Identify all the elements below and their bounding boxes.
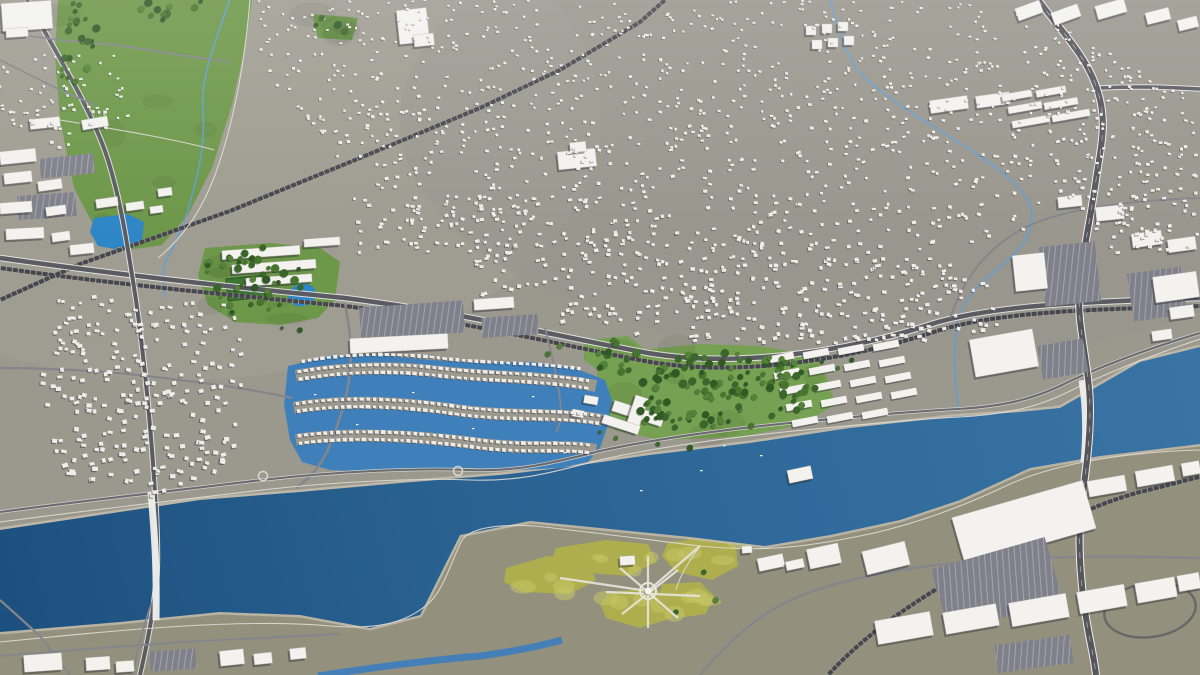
tree (744, 382, 748, 386)
house (610, 144, 613, 147)
building (742, 546, 752, 554)
house (853, 326, 857, 329)
house (151, 425, 157, 430)
house (1183, 209, 1186, 212)
house (919, 7, 922, 10)
house (78, 395, 82, 400)
house (431, 47, 434, 49)
house (521, 441, 526, 445)
house (444, 442, 448, 446)
house (505, 244, 509, 247)
house (891, 334, 896, 337)
house (91, 110, 94, 113)
house (310, 432, 314, 435)
house (1187, 245, 1191, 247)
house (323, 431, 327, 435)
house (216, 408, 221, 413)
house (121, 393, 126, 397)
house (144, 396, 148, 400)
house (721, 266, 724, 269)
house (376, 140, 379, 143)
house (514, 380, 519, 383)
house (882, 335, 885, 339)
house (220, 459, 225, 464)
house (573, 442, 577, 445)
tree (726, 419, 730, 423)
house (121, 357, 124, 360)
house (690, 267, 695, 271)
house (361, 438, 366, 442)
house (676, 97, 679, 100)
house (848, 18, 850, 21)
house (111, 356, 115, 360)
house (984, 230, 988, 233)
house (975, 51, 978, 53)
house (439, 434, 444, 438)
house (455, 48, 458, 50)
house (487, 408, 491, 411)
house (840, 186, 844, 189)
house (1132, 146, 1136, 148)
house (1019, 121, 1022, 123)
house (496, 31, 499, 33)
house (326, 29, 329, 31)
house (323, 374, 328, 377)
house (1168, 224, 1172, 228)
house (565, 383, 569, 387)
house (501, 269, 505, 272)
house (424, 401, 429, 405)
house (480, 415, 484, 418)
house (343, 372, 347, 375)
house (819, 266, 823, 270)
house (1029, 164, 1032, 167)
house (670, 146, 673, 149)
house (404, 4, 407, 7)
house (577, 412, 581, 415)
house (711, 15, 714, 17)
house (534, 94, 537, 97)
house (1058, 41, 1061, 44)
tree (779, 406, 783, 410)
house (509, 441, 513, 444)
house (336, 155, 339, 158)
house (53, 127, 57, 130)
house (406, 218, 409, 222)
tree (721, 349, 729, 357)
tree (702, 411, 709, 418)
house (391, 353, 395, 356)
house (329, 365, 334, 368)
house (961, 159, 964, 162)
house (684, 283, 688, 287)
house (57, 375, 62, 378)
house (884, 190, 887, 193)
house (578, 385, 582, 388)
house (507, 416, 510, 420)
house (345, 134, 349, 137)
house (381, 37, 384, 40)
house (728, 169, 731, 172)
house (931, 170, 935, 173)
house (468, 407, 473, 410)
house (852, 1, 855, 3)
house (844, 336, 848, 340)
house (758, 337, 762, 341)
house (743, 95, 747, 98)
house (462, 359, 466, 362)
house (414, 167, 418, 171)
house (820, 192, 823, 195)
house (919, 327, 924, 331)
house (566, 442, 570, 445)
house (909, 166, 912, 169)
house (179, 373, 183, 377)
house (296, 402, 300, 406)
house (532, 409, 537, 413)
map-canvas (0, 0, 1200, 675)
house (493, 8, 496, 11)
house (94, 397, 98, 400)
house (578, 377, 583, 381)
house (411, 205, 415, 208)
house (581, 252, 585, 255)
house (224, 437, 229, 441)
house (1179, 168, 1182, 170)
building (844, 36, 854, 45)
house (26, 112, 29, 114)
house (405, 28, 407, 30)
house (586, 236, 590, 239)
house (406, 364, 410, 367)
house (949, 26, 952, 28)
house (164, 446, 169, 450)
house (571, 385, 575, 388)
house (872, 55, 875, 58)
boat (640, 490, 643, 491)
house (557, 418, 561, 421)
house (783, 262, 787, 266)
house (449, 403, 454, 407)
house (607, 27, 610, 29)
house (699, 269, 703, 273)
house (998, 91, 1001, 94)
house (395, 175, 399, 178)
house (495, 448, 499, 451)
house (425, 365, 430, 369)
house (570, 419, 575, 422)
house (115, 365, 120, 369)
house (143, 345, 147, 349)
house (1143, 110, 1146, 112)
house (1085, 138, 1088, 141)
house (826, 279, 830, 282)
house (774, 78, 777, 81)
house (1180, 147, 1183, 150)
house (1089, 65, 1092, 67)
tree (679, 417, 683, 421)
house (1070, 139, 1073, 142)
house (741, 257, 744, 260)
house (946, 141, 949, 144)
house (526, 417, 529, 420)
house (122, 443, 127, 448)
house (736, 301, 740, 305)
house (595, 421, 600, 425)
house (532, 417, 536, 420)
house (568, 198, 573, 201)
house (381, 430, 386, 434)
house (455, 358, 459, 362)
house (527, 0, 530, 2)
house (367, 363, 372, 366)
house (417, 354, 421, 358)
house (231, 348, 235, 351)
house (606, 44, 609, 46)
house (519, 362, 524, 365)
house (205, 401, 210, 405)
house (932, 207, 937, 210)
tree (671, 419, 675, 423)
dry-grass-texture (544, 573, 557, 583)
building (86, 656, 111, 671)
house (864, 120, 868, 123)
house (304, 441, 309, 444)
boat (723, 445, 726, 446)
house (549, 222, 553, 225)
house (387, 2, 390, 4)
house (91, 477, 95, 481)
house (578, 198, 582, 201)
house (529, 39, 532, 41)
tree (644, 402, 648, 406)
house (165, 319, 170, 322)
house (814, 242, 817, 246)
house (981, 176, 985, 178)
house (910, 298, 914, 301)
dry-grass-texture (511, 580, 537, 593)
house (906, 131, 909, 133)
house (839, 25, 842, 28)
house (840, 312, 844, 315)
grass-texture (197, 297, 225, 315)
house (1091, 52, 1094, 54)
house (373, 398, 376, 402)
house (768, 256, 771, 259)
house (489, 447, 493, 451)
tree (719, 411, 723, 415)
house (474, 170, 478, 173)
tree (766, 384, 774, 392)
house (531, 152, 535, 155)
highway-branch (1100, 87, 1200, 89)
house (770, 2, 773, 4)
tree (767, 355, 772, 360)
house (87, 332, 91, 335)
house (831, 239, 836, 242)
house (1163, 91, 1167, 93)
house (368, 430, 373, 433)
house (774, 281, 779, 284)
house (435, 131, 438, 133)
house (875, 264, 879, 267)
house (316, 367, 320, 370)
house (804, 24, 807, 27)
tree (675, 355, 682, 362)
house (825, 16, 828, 18)
house (327, 356, 331, 359)
building (158, 187, 173, 197)
house (1148, 245, 1153, 249)
house (72, 108, 76, 111)
house (383, 218, 387, 221)
house (785, 211, 789, 214)
house (410, 354, 414, 357)
house (847, 67, 850, 70)
house (341, 405, 345, 409)
house (515, 224, 519, 228)
tree (687, 359, 694, 366)
tree (775, 369, 779, 373)
house (129, 479, 133, 482)
house (374, 363, 379, 366)
house (637, 143, 640, 145)
house (321, 399, 325, 402)
house (505, 251, 509, 255)
tree (721, 392, 726, 397)
house (1145, 233, 1149, 236)
house (471, 369, 475, 373)
house (1057, 112, 1060, 115)
house (987, 234, 991, 237)
house (586, 379, 590, 382)
house (430, 402, 435, 405)
house (1045, 93, 1049, 96)
house (356, 221, 361, 224)
grass-texture (194, 121, 216, 138)
building (23, 653, 62, 673)
house (662, 37, 665, 40)
house (716, 18, 718, 20)
house (462, 405, 467, 409)
house (946, 160, 949, 162)
house (460, 90, 463, 92)
house (729, 1, 732, 3)
house (593, 293, 596, 296)
house (343, 438, 347, 442)
house (197, 373, 201, 376)
house (316, 432, 321, 435)
house (513, 361, 516, 365)
house (183, 343, 188, 347)
house (540, 442, 545, 445)
house (561, 268, 566, 271)
house (761, 110, 764, 112)
house (777, 322, 780, 326)
house (323, 366, 328, 370)
house (348, 26, 351, 28)
house (481, 408, 486, 411)
house (374, 438, 379, 441)
house (772, 195, 775, 198)
house (1, 108, 4, 111)
house (477, 438, 481, 442)
house (820, 223, 823, 226)
house (584, 412, 588, 416)
house (705, 270, 709, 274)
house (1091, 56, 1094, 59)
house (1194, 175, 1198, 178)
house (305, 376, 309, 380)
house (799, 8, 801, 10)
house (985, 284, 989, 287)
house (540, 449, 544, 452)
house (928, 48, 931, 51)
tree (748, 423, 754, 429)
house (1074, 107, 1077, 110)
house (820, 312, 824, 316)
house (979, 69, 982, 72)
house (96, 107, 99, 109)
house (659, 77, 662, 80)
tree (812, 385, 819, 392)
parking-lot (149, 648, 196, 671)
house (1054, 180, 1057, 183)
house (436, 356, 440, 360)
house (972, 318, 976, 321)
house (231, 443, 236, 448)
house (634, 180, 637, 183)
house (1120, 229, 1124, 232)
house (150, 409, 155, 413)
house (479, 265, 483, 268)
house (608, 162, 612, 166)
house (722, 269, 727, 272)
house (199, 441, 204, 445)
house (60, 368, 64, 372)
house (233, 423, 237, 427)
house (998, 119, 1002, 122)
house (501, 101, 504, 104)
house (613, 219, 617, 222)
house (372, 353, 376, 356)
house (562, 186, 566, 188)
house (459, 1, 462, 4)
house (461, 413, 465, 417)
house (437, 402, 441, 406)
house (1092, 190, 1096, 193)
house (387, 370, 391, 374)
house (736, 292, 740, 295)
house (299, 59, 302, 62)
house (538, 363, 542, 367)
house (668, 66, 672, 69)
tree (702, 387, 708, 393)
house (427, 17, 429, 19)
house (870, 319, 874, 322)
house (817, 304, 820, 307)
tree (736, 352, 740, 356)
house (769, 89, 772, 91)
house (396, 87, 399, 90)
dry-grass-texture (644, 552, 658, 564)
house (846, 315, 850, 318)
house (771, 21, 774, 23)
building (812, 40, 822, 49)
house (420, 19, 422, 21)
house (1065, 38, 1067, 40)
house (1167, 153, 1171, 156)
